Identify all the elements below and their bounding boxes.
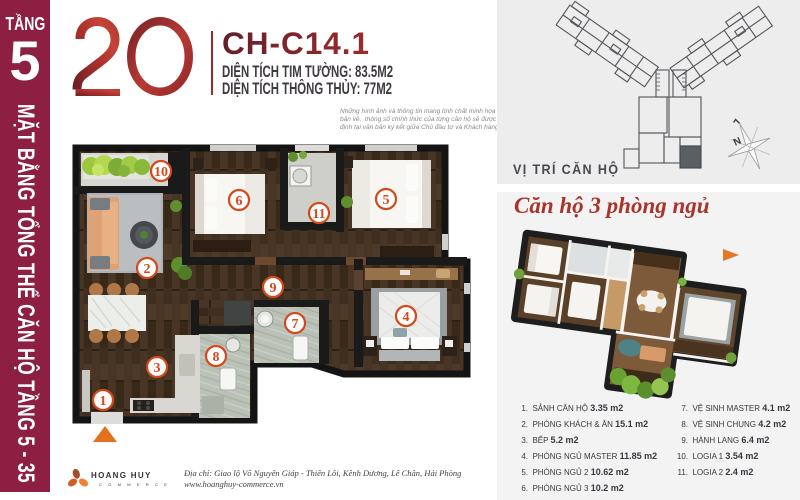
svg-text:6: 6 bbox=[236, 194, 243, 209]
svg-text:2: 2 bbox=[144, 262, 151, 277]
svg-text:11: 11 bbox=[312, 207, 325, 222]
svg-text:7: 7 bbox=[292, 317, 299, 332]
svg-text:9: 9 bbox=[270, 281, 277, 296]
svg-text:10: 10 bbox=[154, 165, 168, 180]
svg-text:5: 5 bbox=[383, 193, 390, 208]
svg-text:N: N bbox=[732, 136, 743, 149]
svg-text:4: 4 bbox=[403, 310, 410, 325]
svg-text:3: 3 bbox=[154, 361, 161, 376]
svg-text:8: 8 bbox=[213, 350, 220, 365]
svg-text:1: 1 bbox=[100, 394, 107, 409]
